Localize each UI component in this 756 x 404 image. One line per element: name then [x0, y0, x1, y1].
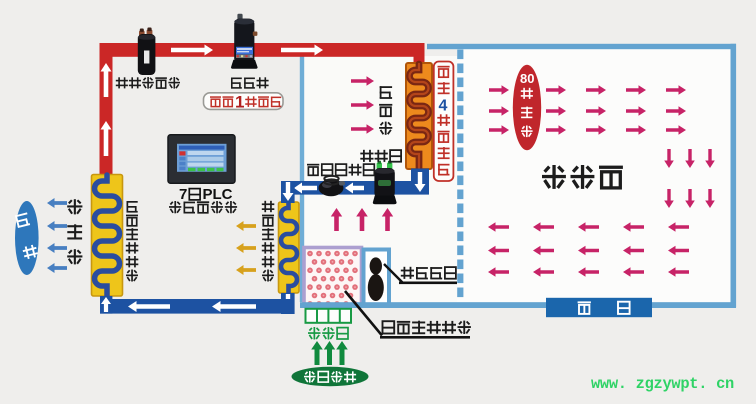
svg-text:1: 1 — [235, 93, 244, 112]
svg-text:www. zgzywpt. cn: www. zgzywpt. cn — [591, 375, 734, 393]
svg-text:80: 80 — [520, 71, 534, 86]
svg-text:7: 7 — [179, 186, 187, 203]
svg-text:PLC: PLC — [203, 186, 233, 203]
svg-text:4: 4 — [439, 98, 448, 115]
